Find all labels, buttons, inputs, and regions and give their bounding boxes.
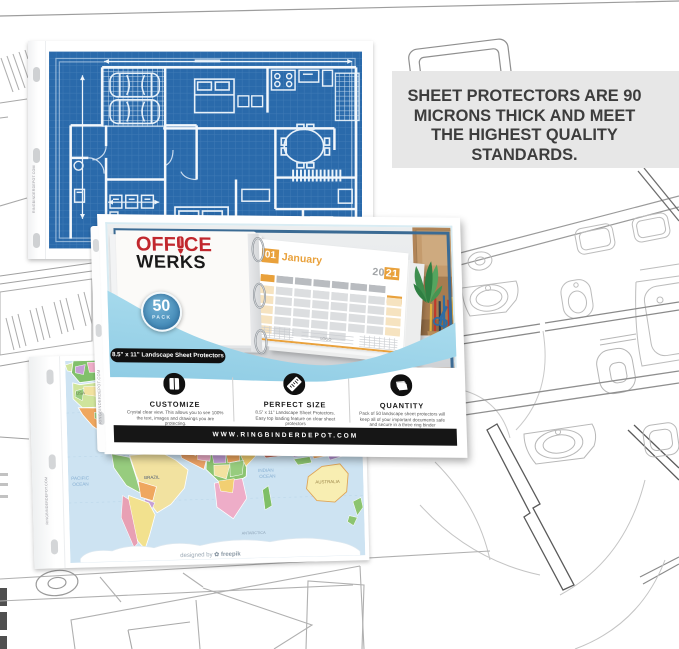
svg-text:ANTARCTICA: ANTARCTICA bbox=[242, 531, 267, 536]
svg-text:AUSTRALIA: AUSTRALIA bbox=[315, 479, 340, 485]
svg-text:INDIAN: INDIAN bbox=[258, 468, 274, 473]
svg-text:BRAZIL: BRAZIL bbox=[144, 475, 160, 480]
svg-text:OCEAN: OCEAN bbox=[72, 481, 88, 486]
svg-text:PACIFIC: PACIFIC bbox=[71, 475, 90, 480]
svg-text:OCEAN: OCEAN bbox=[259, 474, 275, 479]
svg-text:USA: USA bbox=[76, 391, 85, 396]
